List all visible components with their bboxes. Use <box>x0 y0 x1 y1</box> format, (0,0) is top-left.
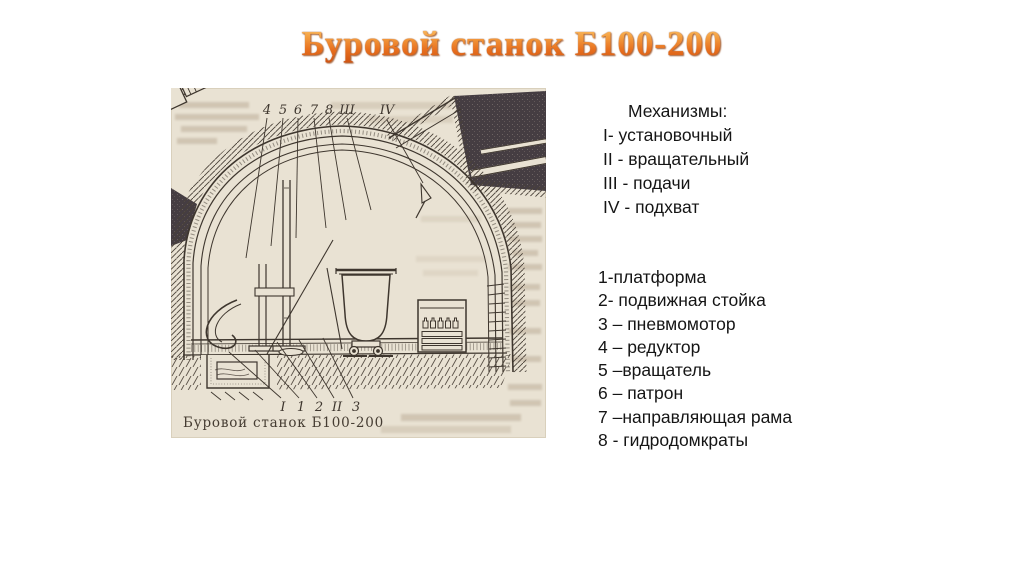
page-title-text: Буровой станок Б100-200 <box>302 24 723 63</box>
fig-label-6: 6 <box>294 103 302 118</box>
parts-list: 1-платформа 2- подвижная стойка 3 – пнев… <box>598 266 792 452</box>
part-item-4: 4 – редуктор <box>598 336 792 359</box>
fig-label-II: II <box>331 400 343 415</box>
part-item-5: 5 –вращатель <box>598 359 792 382</box>
mechanisms-heading: Механизмы: <box>628 99 749 123</box>
mechanisms-list: Механизмы: I- установочный II - вращател… <box>603 99 749 219</box>
part-item-8: 8 - гидродомкраты <box>598 429 792 452</box>
fig-label-2: 2 <box>314 400 323 415</box>
fig-label-I: I <box>279 400 286 415</box>
fig-label-5: 5 <box>279 103 287 118</box>
part-item-1: 1-платформа <box>598 266 792 289</box>
fig-label-3: 3 <box>352 400 360 415</box>
mechanism-item-2: II - вращательный <box>603 147 749 171</box>
fig-label-7: 7 <box>310 103 319 118</box>
mechanism-item-3: III - подачи <box>603 171 749 195</box>
figure-caption: Буровой станок Б100-200 <box>183 415 384 431</box>
part-item-7: 7 –направляющая рама <box>598 406 792 429</box>
part-item-2: 2- подвижная стойка <box>598 289 792 312</box>
drill-rig-diagram: 4 5 6 7 8 III IV I 1 2 II 3 Буровой стан… <box>171 88 546 438</box>
fig-label-4: 4 <box>262 103 271 118</box>
part-item-6: 6 – патрон <box>598 382 792 405</box>
fig-label-III: III <box>338 103 355 118</box>
fig-label-IV: IV <box>379 103 396 118</box>
page-title: Буровой станок Б100-200 <box>0 24 1024 64</box>
mechanism-item-1: I- установочный <box>603 123 749 147</box>
figure-scan: 4 5 6 7 8 III IV I 1 2 II 3 Буровой стан… <box>171 88 546 438</box>
bottle-crate <box>418 300 466 352</box>
part-item-3: 3 – пневмомотор <box>598 313 792 336</box>
fig-label-8: 8 <box>325 103 333 118</box>
fig-label-1: 1 <box>297 400 305 415</box>
mechanism-item-4: IV - подхват <box>603 195 749 219</box>
